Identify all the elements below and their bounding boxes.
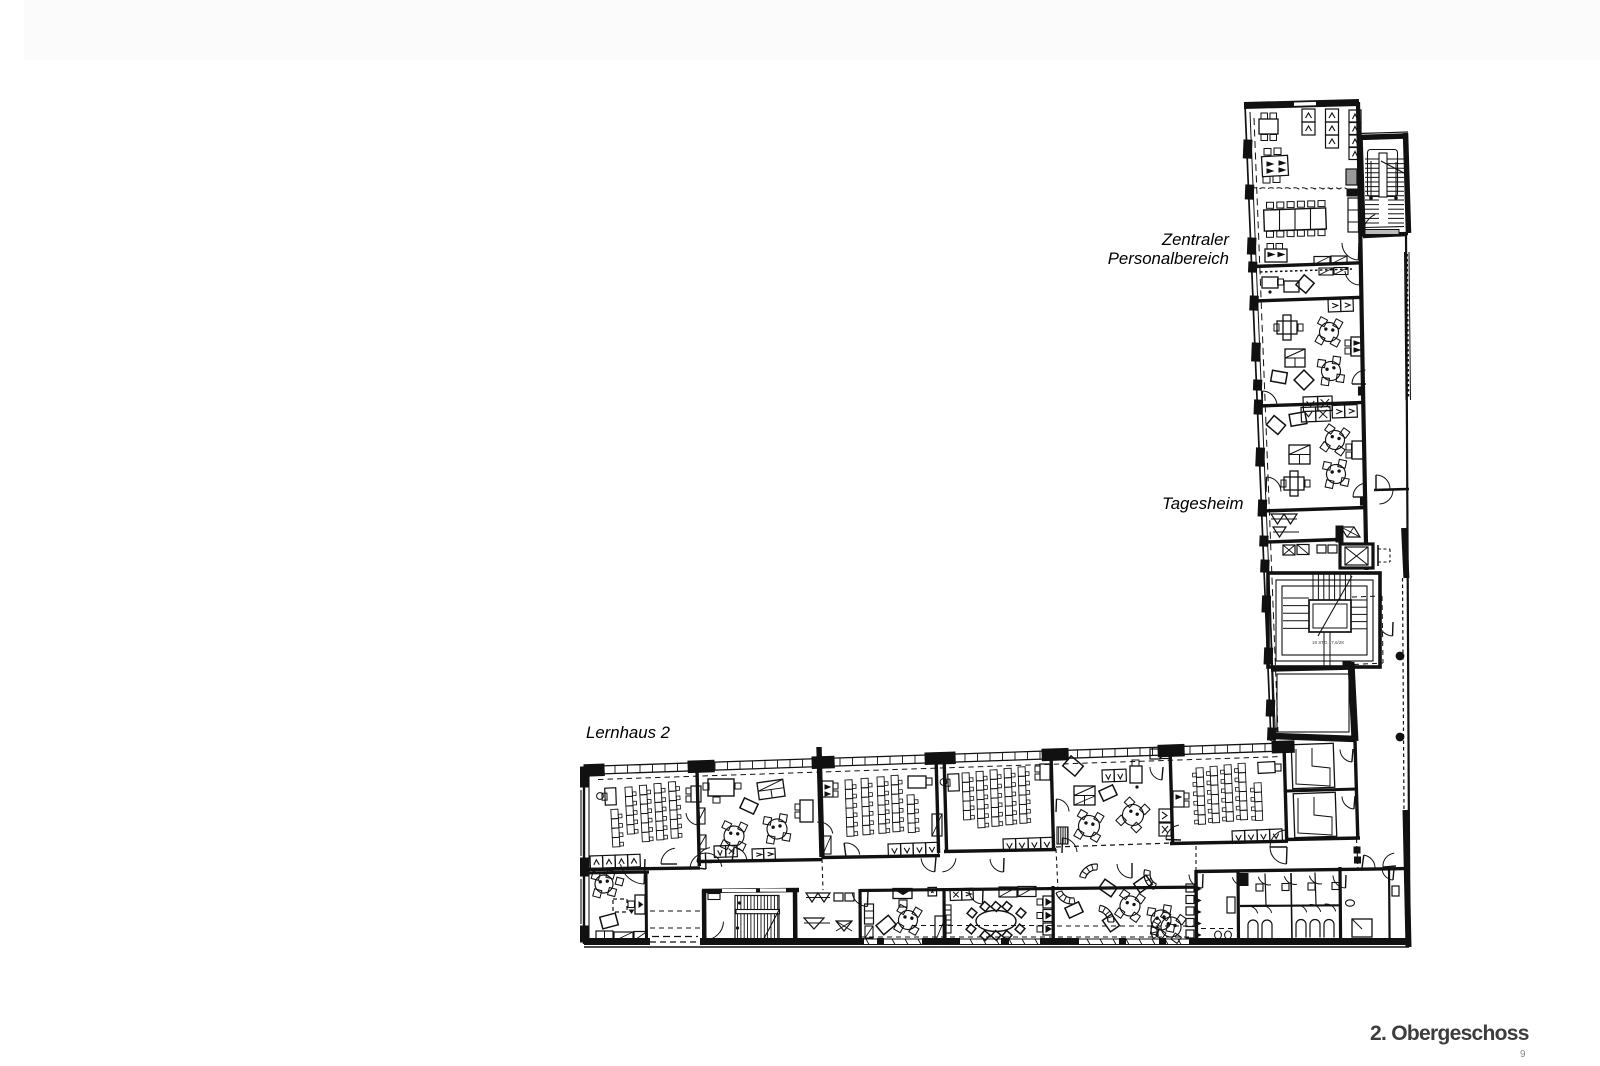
svg-text:Lernhaus 2: Lernhaus 2 [586, 723, 671, 742]
svg-text:Tagesheim: Tagesheim [1162, 494, 1243, 513]
svg-text:Zentraler: Zentraler [1161, 230, 1231, 249]
svg-text:18 STG 17,6/28: 18 STG 17,6/28 [1312, 640, 1344, 645]
svg-text:Personalbereich: Personalbereich [1108, 249, 1229, 268]
svg-text:2. Obergeschoss: 2. Obergeschoss [1370, 1022, 1529, 1045]
svg-text:9: 9 [1520, 1049, 1526, 1060]
